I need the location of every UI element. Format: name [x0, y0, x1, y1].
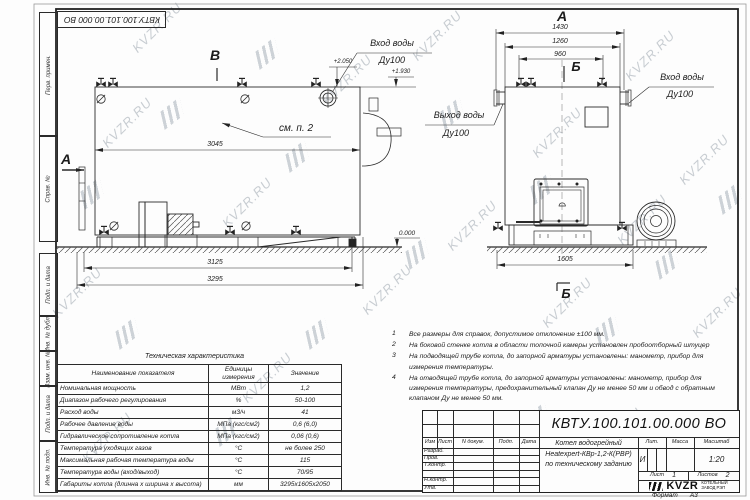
- row-name: Максимальная рабочая температура воды: [58, 455, 209, 467]
- col-data: Дата: [519, 437, 539, 448]
- row-name: Диапазон рабочего регулирования: [58, 395, 209, 407]
- label-water-inlet-front: Вход воды: [645, 72, 719, 82]
- table-row: Рабочее давление водыМПа (кгс/см2)0,6 (6…: [58, 419, 342, 431]
- format-label: Формат: [652, 492, 678, 499]
- row-unit: МПа (кгс/см2): [209, 419, 269, 431]
- note-text: Все размеры для справок, допустимое откл…: [409, 330, 605, 340]
- row-name: Номинальная мощность: [58, 383, 209, 395]
- dim-3125: 3125: [175, 259, 255, 266]
- row-value: не более 250: [269, 443, 342, 455]
- notes-list: 1Все размеры для справок, допустимое отк…: [392, 330, 722, 405]
- margin-cell-podp-data-2: Подп. и дата: [39, 385, 58, 442]
- list-item: 2На боковой стенке котла в области топоч…: [392, 341, 722, 351]
- row-prov: Пров.: [424, 455, 453, 462]
- dim-960: 960: [530, 51, 590, 58]
- table-row: Температура уходящих газов°Сне более 250: [58, 443, 342, 455]
- company-logo-row: KVZR КОТЕЛЬНЫЙ ЗАВОД РЭП: [638, 480, 739, 492]
- table-row: Габариты котла (длинна х ширина х высота…: [58, 479, 342, 491]
- col-list: Лист: [437, 437, 453, 448]
- row-blank: [424, 470, 453, 477]
- row-value: 1,2: [269, 383, 342, 395]
- col-podp: Подп.: [493, 437, 519, 448]
- label-water-inlet-side-dn: Ду100: [368, 55, 416, 65]
- row-tkontr: Т.контр.: [424, 462, 453, 470]
- kvzr-logo-icon: [649, 482, 663, 491]
- row-name: Расход воды: [58, 407, 209, 419]
- row-razrab: Разраб.: [424, 448, 453, 455]
- row-unit: МВт: [209, 383, 269, 395]
- label-water-inlet-side: Вход воды: [352, 38, 432, 48]
- table-row: Температура воды (вход/выход)°С70/95: [58, 467, 342, 479]
- row-unit: мм: [209, 479, 269, 491]
- sheet-label: Лист: [650, 473, 664, 479]
- callout-see-item-2: см. п. 2: [260, 123, 332, 134]
- level-mark-1930: +1.930: [386, 69, 416, 75]
- margin-cell-podp-data-1: Подп. и дата: [39, 253, 58, 317]
- label-water-outlet-front-dn: Ду100: [432, 128, 480, 138]
- row-name: Гидравлическое сопротивление котла: [58, 431, 209, 443]
- note-number: 3: [392, 352, 409, 372]
- top-stamp-designation: КВТУ.100.101.00.000 ВО: [57, 11, 166, 28]
- tech-table-header-unit: Единицы измерения: [209, 365, 269, 383]
- margin-label: Инв. № подл.: [46, 448, 52, 485]
- margin-label: Подп. и дата: [46, 395, 52, 433]
- row-name: Температура воды (вход/выход): [58, 467, 209, 479]
- product-line-1: Котел водогрейный: [539, 439, 638, 450]
- margin-label: Взам. инв. №: [46, 350, 52, 387]
- tech-table-title: Техническая характеристика: [57, 353, 332, 360]
- tech-table-header-name: Наименование показателя: [58, 365, 209, 383]
- section-label-b-top: Б: [566, 59, 586, 74]
- label-water-inlet-front-dn: Ду100: [655, 89, 705, 99]
- list-item: 1Все размеры для справок, допустимое отк…: [392, 330, 722, 340]
- row-utv: Утв.: [424, 485, 453, 492]
- margin-cell-perv-primen: Перв. примен.: [39, 12, 58, 137]
- margin-cell-vzam-inv: Взам. инв. №: [39, 350, 58, 387]
- tech-table-header-value: Значение: [269, 365, 342, 383]
- kvzr-logo-text: KVZR: [666, 480, 698, 492]
- row-value: 115: [269, 455, 342, 467]
- scale-value: 1:20: [694, 448, 739, 471]
- margin-cell-inv-podl: Инв. № подл.: [39, 440, 58, 493]
- row-value: 41: [269, 407, 342, 419]
- row-name: Температура уходящих газов: [58, 443, 209, 455]
- sheet-cell: Лист 1: [638, 471, 688, 480]
- product-name: Котел водогрейный Heatexpert-КВр-1,2-К(Р…: [539, 439, 638, 471]
- row-value: 50-100: [269, 395, 342, 407]
- row-unit: °С: [209, 443, 269, 455]
- margin-label: Подп. и дата: [46, 266, 52, 304]
- row-unit: °С: [209, 467, 269, 479]
- drawing-designation: КВТУ.100.101.00.000 ВО: [539, 411, 739, 437]
- margin-label: Перв. примен.: [46, 55, 52, 95]
- table-row: Номинальная мощностьМВт1,2: [58, 383, 342, 395]
- section-label-a-left: А: [56, 151, 76, 167]
- row-name: Рабочее давление воды: [58, 419, 209, 431]
- sheets-cell: Листов 2: [688, 471, 739, 480]
- lit-header: Лит.: [638, 437, 666, 448]
- dim-1605: 1605: [535, 256, 595, 263]
- title-block: КВТУ.100.101.00.000 ВО Изм Лист N докум.…: [422, 410, 740, 493]
- list-item: 4На отводящей трубе котла, до запорной а…: [392, 374, 722, 405]
- format-value: А3: [690, 492, 698, 499]
- table-row: Гидравлическое сопротивление котлаМПа (к…: [58, 431, 342, 443]
- row-value: 70/95: [269, 467, 342, 479]
- note-number: 1: [392, 330, 409, 340]
- margin-label: Справ. №: [46, 175, 52, 202]
- tech-table: Наименование показателя Единицы измерени…: [57, 364, 342, 491]
- table-row: Диапазон рабочего регулирования%50-100: [58, 395, 342, 407]
- table-row: Максимальная рабочая температура воды°С1…: [58, 455, 342, 467]
- margin-label: Инв. № дубл.: [46, 315, 52, 352]
- product-line-3: по техническому заданию: [539, 460, 638, 471]
- row-value: 3295х1605х2050: [269, 479, 342, 491]
- col-izm: Изм: [423, 437, 437, 448]
- view-label-b: В: [205, 47, 225, 63]
- list-item: 3На подводящей трубе котла, до запорной …: [392, 352, 722, 372]
- sheets-number: 2: [726, 472, 730, 479]
- row-nkontr: Н.контр.: [424, 477, 453, 485]
- label-water-outlet-front: Выход воды: [420, 110, 498, 120]
- sheets-label: Листов: [698, 473, 718, 479]
- scale-header: Масштаб: [694, 437, 739, 448]
- company-line-2: ЗАВОД РЭП: [701, 486, 727, 491]
- row-unit: %: [209, 395, 269, 407]
- note-text: На боковой стенке котла в области топочн…: [409, 341, 709, 351]
- row-value: 0,6 (6,0): [269, 419, 342, 431]
- top-stamp-text: КВТУ.100.101.00.000 ВО: [64, 15, 160, 25]
- dim-1430: 1430: [530, 24, 590, 31]
- product-line-2: Heatexpert-КВр-1,2-К(РВР): [539, 450, 638, 461]
- row-name: Габариты котла (длинна х ширина х высота…: [58, 479, 209, 491]
- dim-1260: 1260: [530, 38, 590, 45]
- row-unit: МПа (кгс/см2): [209, 431, 269, 443]
- note-number: 2: [392, 341, 409, 351]
- note-text: На отводящей трубе котла, до запорной ар…: [409, 374, 722, 405]
- mass-header: Масса: [666, 437, 694, 448]
- view-label-a-top: А: [550, 8, 574, 24]
- col-doc: N докум.: [453, 437, 493, 448]
- lit-value: И: [638, 448, 647, 471]
- dim-3295: 3295: [175, 276, 255, 283]
- row-value: 0,06 (0,6): [269, 431, 342, 443]
- note-text: На подводящей трубе котла, до запорной а…: [409, 352, 722, 372]
- level-mark-0000: 0.000: [392, 230, 422, 237]
- dim-3045: 3045: [175, 141, 255, 148]
- note-number: 4: [392, 374, 409, 405]
- company-name: КОТЕЛЬНЫЙ ЗАВОД РЭП: [701, 481, 727, 491]
- row-unit: м3/ч: [209, 407, 269, 419]
- margin-cell-inv-dubl: Инв. № дубл.: [39, 315, 58, 352]
- format-strip: Формат А3: [652, 492, 742, 499]
- section-label-b-bottom: Б: [556, 286, 576, 301]
- sheet-number: 1: [672, 472, 676, 479]
- tech-table-header-row: Наименование показателя Единицы измерени…: [58, 365, 342, 383]
- table-row: Расход водым3/ч41: [58, 407, 342, 419]
- row-unit: °С: [209, 455, 269, 467]
- drawing-sheet: KVZR.RU KVZR.RU KVZR.RU KVZR.RU KVZR.RU …: [0, 0, 750, 500]
- level-mark-2050: +2.050: [328, 59, 358, 65]
